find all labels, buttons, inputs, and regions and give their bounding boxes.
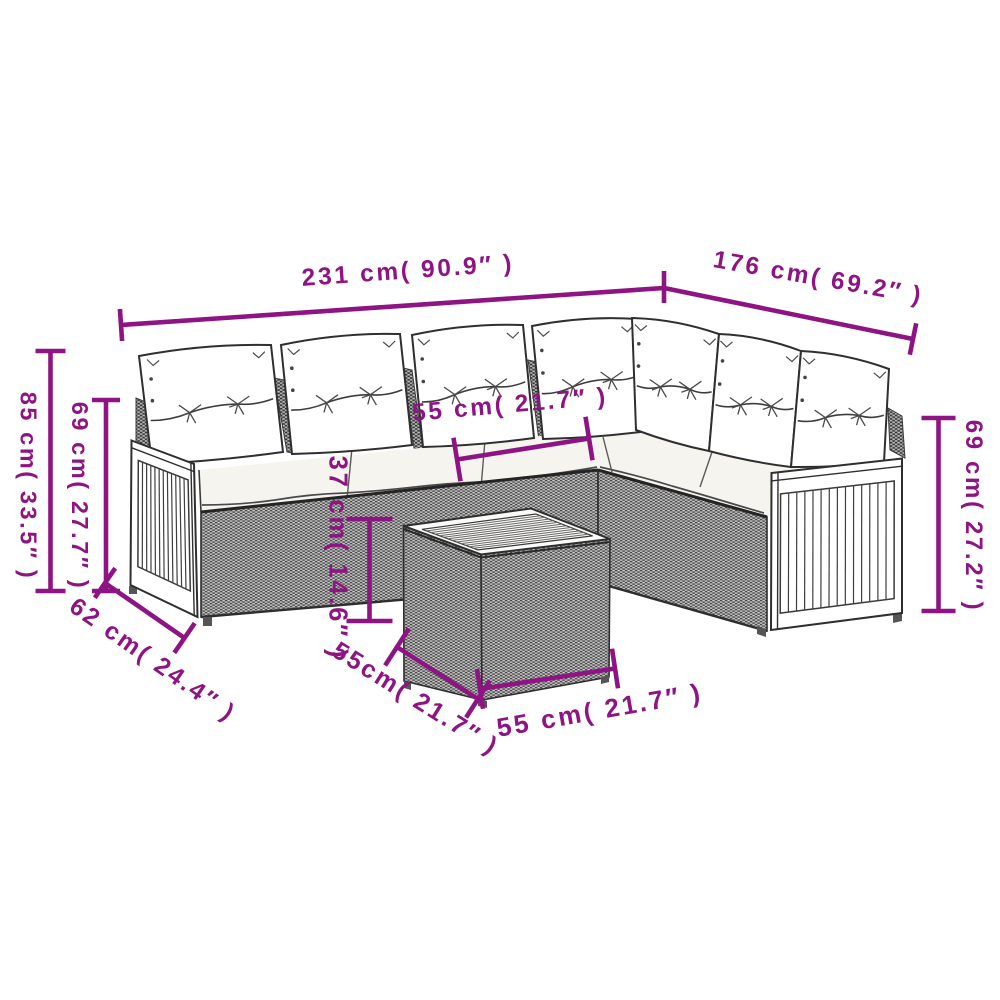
svg-text:85 cm( 33.5″ ): 85 cm( 33.5″ ) [15, 392, 41, 580]
svg-text:37 cm( 14.6″ ): 37 cm( 14.6″ ) [323, 456, 351, 661]
svg-text:69 cm( 27.7″ ): 69 cm( 27.7″ ) [67, 402, 93, 590]
svg-text:69 cm( 27.2″ ): 69 cm( 27.2″ ) [960, 420, 987, 613]
